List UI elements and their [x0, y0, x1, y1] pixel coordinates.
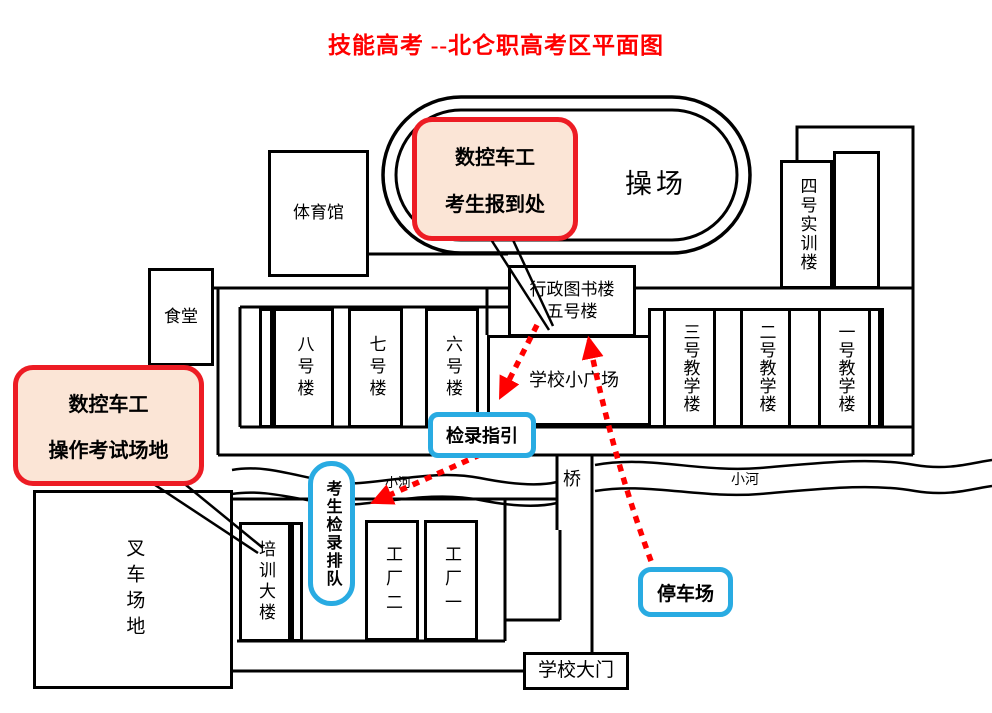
building-no6: 六号楼: [425, 308, 479, 428]
forklift-area: 叉车场地: [33, 490, 233, 689]
building-canteen-label: 食堂: [164, 306, 198, 328]
callout-report-line1: 数控车工: [455, 141, 535, 170]
school-gate: 学校大门: [523, 652, 629, 690]
building-no7: 七号楼: [348, 308, 403, 428]
building-teach1: 一号教学楼: [818, 308, 871, 428]
callout-report-point: 数控车工 考生报到处: [412, 117, 578, 241]
river-label-right: 小河: [725, 469, 765, 489]
building-factory1-label: 工厂一: [440, 545, 462, 617]
building-teach3-label: 三号教学楼: [678, 323, 700, 413]
callout-exam-site: 数控车工 操作考试场地: [13, 365, 204, 486]
campus-map-canvas: 体育馆 食堂 八号楼 七号楼 六号楼 行政图书楼 五号楼 学校小广场 三号教学楼…: [0, 0, 992, 713]
building-library-label-2: 五号楼: [547, 301, 598, 323]
callout-queue: 考生检录排队: [308, 461, 355, 606]
callout-exam-line2: 操作考试场地: [49, 434, 169, 463]
building-teach2-label: 二号教学楼: [754, 323, 776, 413]
callout-checkin-guide: 检录指引: [428, 412, 536, 458]
forklift-area-label: 叉车场地: [121, 538, 146, 642]
building-no6-label: 六号楼: [441, 335, 463, 401]
callout-queue-label: 考生检录排队: [320, 480, 344, 588]
river-label-left: 小河: [378, 472, 418, 491]
river-right: [595, 460, 992, 495]
building-teach2: 二号教学楼: [740, 308, 791, 428]
building-no7-label: 七号楼: [364, 335, 386, 401]
building-training-tower-label: 培训大楼: [254, 540, 276, 624]
building-library: 行政图书楼 五号楼: [508, 265, 636, 337]
building-no8: 八号楼: [273, 308, 334, 428]
building-library-label-1: 行政图书楼: [530, 279, 615, 301]
building-factory1: 工厂一: [424, 520, 478, 641]
building-factory2: 工厂二: [365, 520, 419, 641]
building-training-tower: 培训大楼: [239, 522, 291, 642]
building-teach1-label: 一号教学楼: [833, 323, 855, 413]
callout-report-line2: 考生报到处: [445, 188, 545, 217]
building-no8-label: 八号楼: [292, 335, 314, 401]
callout-checkin-guide-label: 检录指引: [446, 422, 518, 448]
building-training4: 四号实训楼: [780, 160, 833, 289]
page-title: 技能高考 --北仑职高考区平面图: [0, 26, 992, 60]
callout-parking: 停车场: [638, 567, 733, 617]
annex-box: [833, 151, 880, 289]
corridor-box: [868, 308, 881, 428]
building-teach3: 三号教学楼: [663, 308, 716, 428]
school-plaza-label: 学校小广场: [529, 369, 619, 392]
building-factory2-label: 工厂二: [381, 545, 403, 617]
building-gym: 体育馆: [268, 150, 369, 277]
building-canteen: 食堂: [148, 268, 214, 366]
corridor-box: [291, 522, 303, 642]
corridor-box: [259, 308, 273, 428]
building-training4-label: 四号实训楼: [795, 177, 817, 272]
school-gate-label: 学校大门: [538, 659, 614, 684]
callout-parking-label: 停车场: [657, 579, 714, 606]
bridge-label: 桥: [552, 465, 592, 491]
playground-label: 操场: [606, 162, 706, 201]
building-gym-label: 体育馆: [293, 202, 344, 224]
callout-exam-line1: 数控车工: [69, 388, 149, 417]
